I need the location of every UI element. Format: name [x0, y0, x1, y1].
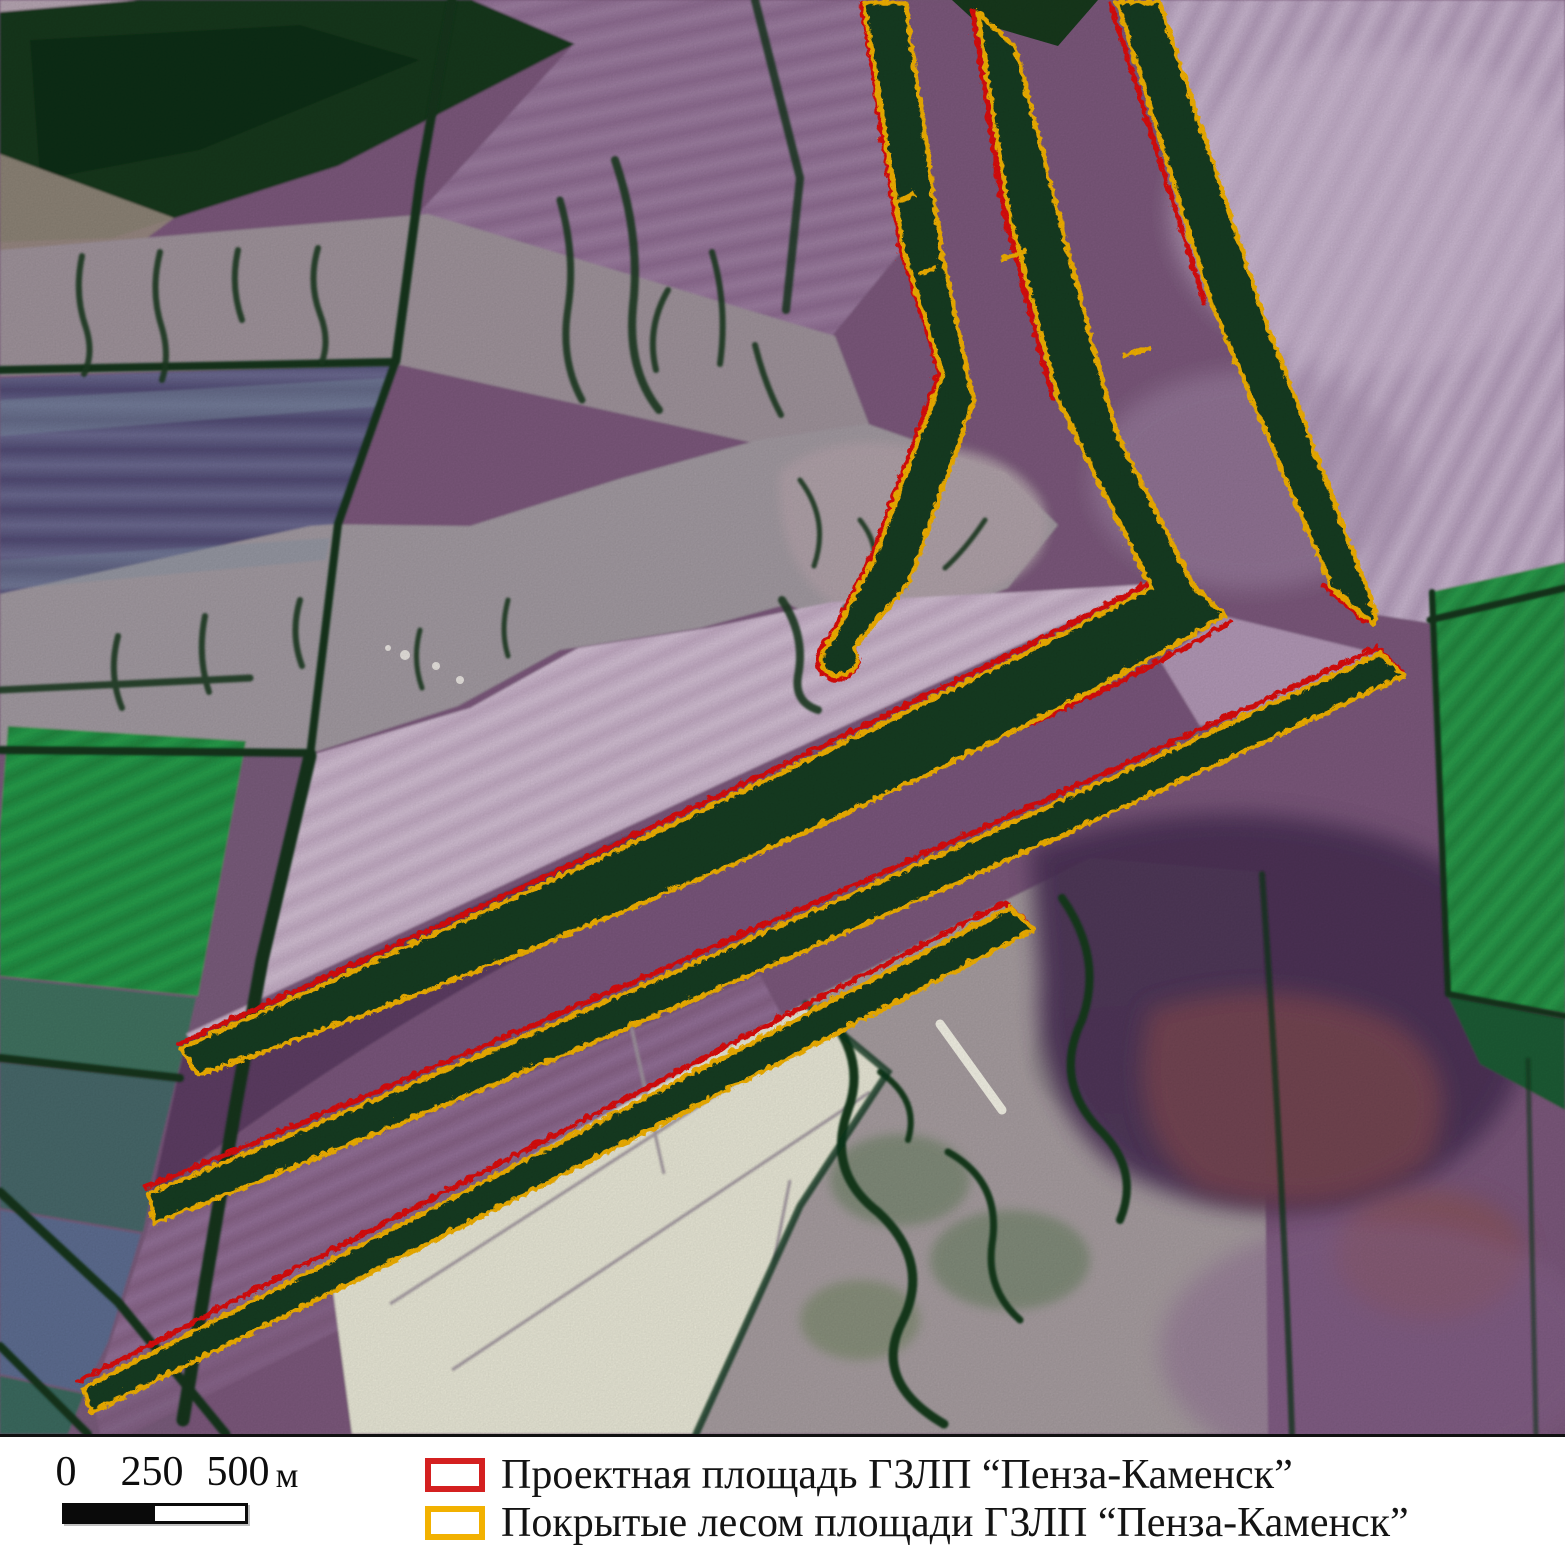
scale-tick-250: 250	[121, 1451, 184, 1493]
scale-bar	[62, 1503, 248, 1524]
project-area-swatch	[425, 1458, 485, 1492]
scale-tick-500: 500	[207, 1451, 270, 1493]
forested-area-swatch	[425, 1506, 485, 1540]
scale-tick-0: 0	[56, 1451, 77, 1493]
map-footer: 0 250 500 м Проектная площадь ГЗЛП “Пенз…	[0, 1437, 1565, 1551]
forested-area-label: Покрытые лесом площади ГЗЛП “Пенза-Камен…	[501, 1502, 1409, 1544]
scale-bar-filled-half	[65, 1506, 155, 1521]
legend-item-forested-area: Покрытые лесом площади ГЗЛП “Пенза-Камен…	[425, 1503, 1409, 1543]
image-grain	[0, 0, 1565, 1434]
satellite-map	[0, 0, 1565, 1437]
scale-unit-label: м	[276, 1457, 299, 1493]
satellite-map-canvas	[0, 0, 1565, 1434]
project-area-label: Проектная площадь ГЗЛП “Пенза-Каменск”	[501, 1454, 1293, 1496]
legend-item-project-area: Проектная площадь ГЗЛП “Пенза-Каменск”	[425, 1455, 1293, 1495]
